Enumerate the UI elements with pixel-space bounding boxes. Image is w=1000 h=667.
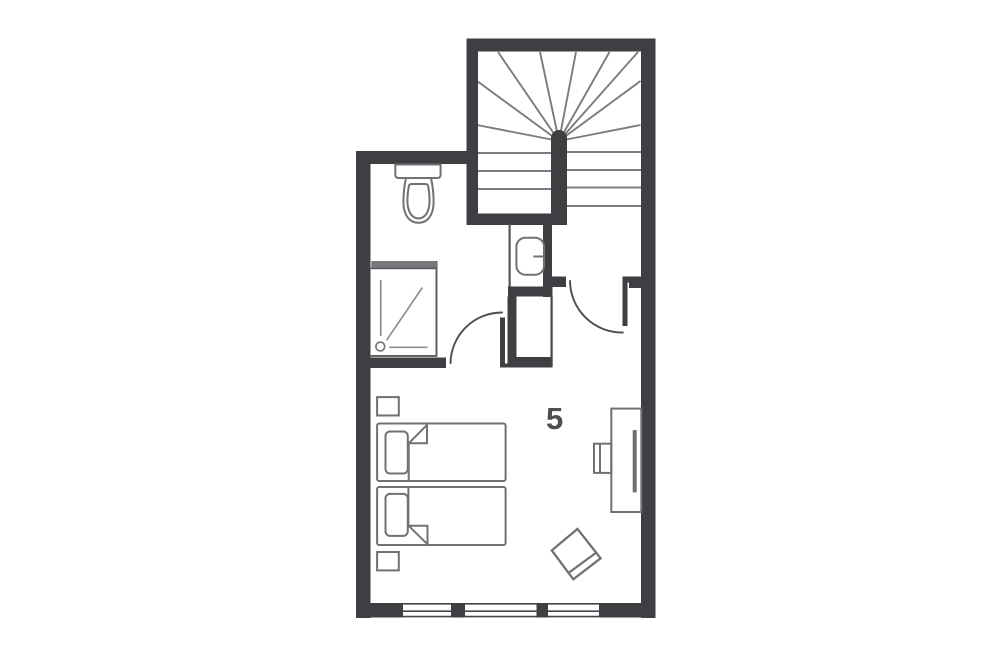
svg-text:5: 5: [546, 401, 563, 436]
